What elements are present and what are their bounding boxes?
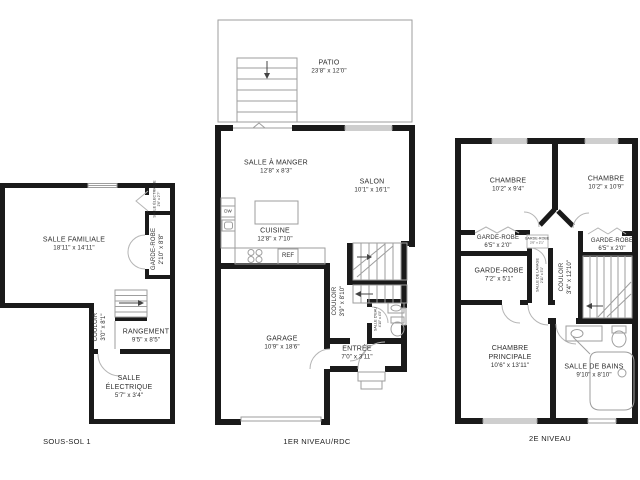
room-label-garage: GARAGE 10'9" x 18'6" — [264, 334, 299, 351]
room-label-garde-robe-3: GARDE-ROBE 7'2" x 5'1" — [474, 266, 523, 283]
room-label-salle-familiale: SALLE FAMILIALE 18'11" x 14'11" — [43, 235, 105, 252]
room-label-salon: SALON 10'1" x 16'1" — [354, 177, 389, 194]
room-label-salle-electrique-petite: SALLE ÉLECTRIQUE 2'6" x 2'7" — [153, 180, 162, 217]
room-label-rangement: RANGEMENT 9'5" x 8'5" — [123, 327, 170, 344]
room-label-entree: ENTRÉE 7'0" x 3'11" — [341, 344, 372, 361]
room-label-salle-electrique: SALLE ÉLECTRIQUE 5'7" x 3'4" — [100, 374, 158, 400]
room-label-chambre-1: CHAMBRE 10'2" x 9'4" — [490, 176, 526, 193]
floor-plan-canvas: SALLE FAMILIALE 18'11" x 14'11" SALLE ÉL… — [0, 0, 640, 480]
room-label-salle-de-bains: SALLE DE BAINS 9'10" x 8'10" — [564, 362, 623, 379]
etage-angled-walls — [540, 209, 573, 226]
room-label-cuisine: CUISINE 12'8" x 7'10" — [257, 226, 292, 243]
patio-stairs-arrow-icon — [264, 73, 270, 79]
caption-sous-sol: SOUS-SOL 1 — [43, 437, 91, 446]
garage-door-icon — [241, 417, 321, 421]
room-label-salle-eau: SALLE D'EAU 4'10" x 4'5" — [374, 307, 383, 331]
room-label-garde-robe-ss: GARDE-ROBE 2'10" x 8'8" — [151, 228, 167, 270]
room-label-couloir-ss: COULOIR 3'0" x 8'1" — [93, 313, 109, 342]
dishwasher-label: DW — [224, 209, 232, 214]
rdc-stairs-icon — [353, 243, 407, 303]
caption-1er-niveau: 1ER NIVEAU/RDC — [283, 437, 350, 446]
room-label-chambre-2: CHAMBRE 10'2" x 10'9" — [588, 174, 624, 191]
room-label-patio: PATIO 23'8" x 12'0" — [311, 58, 346, 75]
basement-door-arcs — [98, 191, 148, 376]
room-label-salle-de-lavage: SALLE DE LAVAGE 2'11" x 5'1" — [536, 258, 545, 292]
entry-steps-icon — [358, 372, 385, 389]
room-label-garde-robe-2: GARDE-ROBE 6'5" x 2'0" — [591, 238, 633, 254]
basement-window-icon — [88, 184, 117, 188]
caption-2e-niveau: 2E NIVEAU — [529, 434, 571, 443]
rdc-stairs-down-arrow-icon — [355, 291, 361, 297]
etage-stairs-arrow-icon — [586, 303, 592, 309]
room-label-couloir-rdc: COULOIR 3'9" x 8'10" — [332, 286, 348, 317]
room-label-chambre-principale: CHAMBRE PRINCIPALE 10'6" x 13'11" — [478, 344, 542, 370]
room-label-garde-robe-petite: GARDE-ROBE 2'0" x 2'1" — [525, 237, 550, 246]
room-label-couloir-etage: COULOIR 3'4" x 12'10" — [559, 260, 575, 294]
fridge-label: REF — [282, 253, 294, 259]
etage-stairs-icon — [583, 256, 632, 318]
patio-stairs-icon — [237, 58, 297, 122]
room-label-garde-robe-1: GARDE-ROBE 6'5" x 2'0" — [477, 235, 519, 251]
room-label-salle-a-manger: SALLE À MANGER 12'8" x 8'3" — [244, 158, 308, 175]
